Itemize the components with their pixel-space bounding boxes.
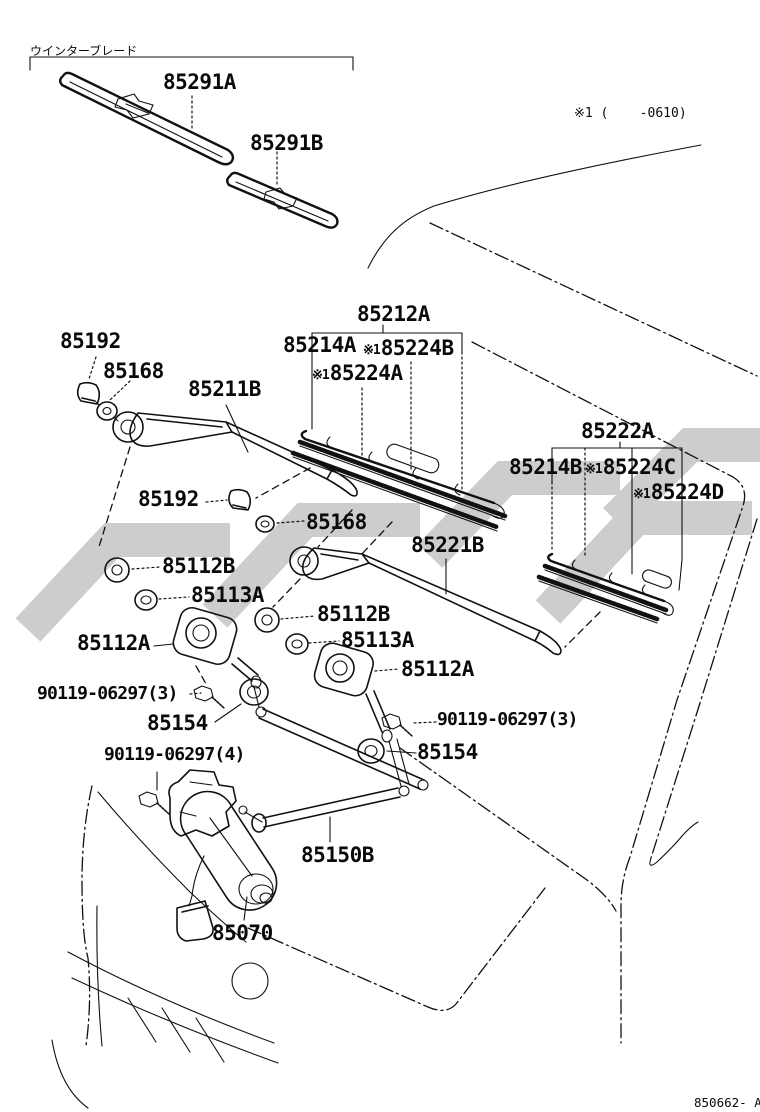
part-number: 85112B [162, 554, 235, 578]
footnote-marker: ※1 [363, 343, 380, 358]
part-number: 85112A [77, 631, 150, 655]
part-label-85113A-2: 85113A [341, 628, 414, 652]
diagram-line-art [0, 0, 760, 1112]
wiper-arm-85221B-drawing [290, 547, 561, 654]
part-label-85154-2: 85154 [417, 740, 478, 764]
part-number: 85224D [651, 480, 724, 504]
nut-85168-1-drawing [96, 402, 118, 421]
part-label-85214B: 85214B [509, 455, 582, 479]
part-label-85192-1: 85192 [60, 329, 121, 353]
wiper-blade-85291B-drawing [227, 152, 337, 228]
variant-note: ※1 ( -0610) [574, 106, 687, 121]
cap-85192-2-drawing [229, 490, 250, 510]
grommet-85154-2-drawing [358, 739, 384, 763]
part-label-85224C: ※185224C [585, 455, 676, 479]
part-label-85291B: 85291B [250, 131, 323, 155]
part-number: 85070 [212, 921, 273, 945]
part-number: 85224B [381, 336, 454, 360]
wiper-linkage-drawing [232, 658, 428, 832]
part-label-85112B-2: 85112B [317, 602, 390, 626]
winter-blade-note: ウインターブレード [30, 42, 137, 59]
part-label-90119-06297-3-1: 90119-06297(3) [37, 683, 178, 704]
part-label-85112B-1: 85112B [162, 554, 235, 578]
part-number: 85291B [250, 131, 323, 155]
part-label-85224B: ※185224B [363, 336, 454, 360]
part-number: 85192 [138, 487, 199, 511]
wiper-motor-85070-drawing [169, 770, 277, 941]
part-number: 85154 [417, 740, 478, 764]
parts-diagram-page: ウインターブレード ※1 ( -0610) 850662- A 85291A 8… [0, 0, 760, 1112]
part-label-85154-1: 85154 [147, 711, 208, 735]
part-label-85214A: 85214A [283, 333, 356, 357]
cap-85192-1-drawing [78, 383, 100, 404]
part-number: 85113A [191, 583, 264, 607]
part-label-85211B: 85211B [188, 377, 261, 401]
part-number: 90119-06297(3) [437, 709, 578, 730]
grommet-85154-1-drawing [240, 679, 268, 705]
part-label-85168-2: 85168 [306, 510, 367, 534]
nut-85113A-2-drawing [286, 634, 308, 654]
part-label-85291A: 85291A [163, 70, 236, 94]
part-number: 90119-06297(3) [37, 683, 178, 704]
part-label-85168-1: 85168 [103, 359, 164, 383]
part-number: 85112B [317, 602, 390, 626]
part-number: 85221B [411, 533, 484, 557]
part-number: 85150B [301, 843, 374, 867]
part-label-85112A-2: 85112A [401, 657, 474, 681]
part-label-85150B: 85150B [301, 843, 374, 867]
part-label-85113A-1: 85113A [191, 583, 264, 607]
part-number: 85291A [163, 70, 236, 94]
part-label-85212A: 85212A [357, 302, 430, 326]
part-number: 85212A [357, 302, 430, 326]
part-number: 85192 [60, 329, 121, 353]
part-label-90119-06297-3-2: 90119-06297(3) [437, 709, 578, 730]
nut-85168-2-drawing [256, 516, 274, 532]
footnote-marker: ※1 [633, 487, 650, 502]
screw-90119-06297-4-drawing [139, 792, 169, 814]
figure-code: 850662- A [694, 1095, 760, 1110]
nut-85113A-1-drawing [135, 590, 157, 610]
part-label-85112A-1: 85112A [77, 631, 150, 655]
part-label-85221B: 85221B [411, 533, 484, 557]
part-number: 85224C [603, 455, 676, 479]
part-number: 85222A [581, 419, 654, 443]
part-number: 85154 [147, 711, 208, 735]
grommet-85112B-2-drawing [255, 608, 279, 632]
part-number: 85113A [341, 628, 414, 652]
part-label-90119-06297-4: 90119-06297(4) [104, 744, 245, 765]
part-number: 85168 [103, 359, 164, 383]
part-label-85224A: ※185224A [312, 361, 403, 385]
part-number: 85168 [306, 510, 367, 534]
part-number: 90119-06297(4) [104, 744, 245, 765]
part-number: 85211B [188, 377, 261, 401]
grommet-85112B-1-drawing [105, 558, 129, 582]
part-number: 85214A [283, 333, 356, 357]
part-label-85070: 85070 [212, 921, 273, 945]
footnote-marker: ※1 [585, 462, 602, 477]
screw-90119-06297-3-1-drawing [194, 686, 224, 708]
part-label-85192-2: 85192 [138, 487, 199, 511]
part-number: 85224A [330, 361, 403, 385]
part-number: 85214B [509, 455, 582, 479]
part-number: 85112A [401, 657, 474, 681]
car-body-outline [52, 145, 757, 1108]
part-label-85222A: 85222A [581, 419, 654, 443]
part-label-85224D: ※185224D [633, 480, 724, 504]
footnote-marker: ※1 [312, 368, 329, 383]
screw-90119-06297-3-2-drawing [382, 714, 412, 736]
